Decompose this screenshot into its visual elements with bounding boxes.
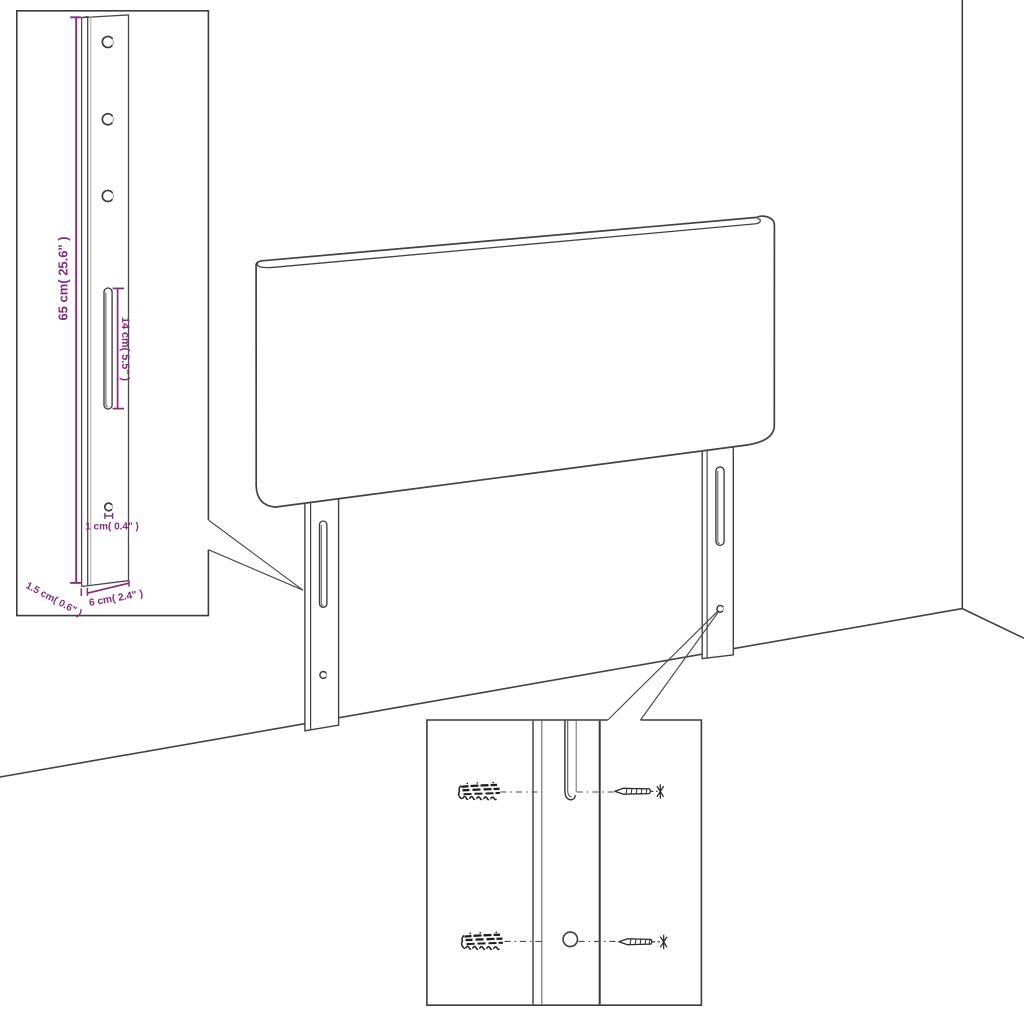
svg-text:65 cm( 25.6" ): 65 cm( 25.6" ) xyxy=(56,236,71,320)
svg-text:14 cm( 5.5" ): 14 cm( 5.5" ) xyxy=(119,317,131,381)
svg-text:1 cm( 0.4" ): 1 cm( 0.4" ) xyxy=(85,522,139,533)
